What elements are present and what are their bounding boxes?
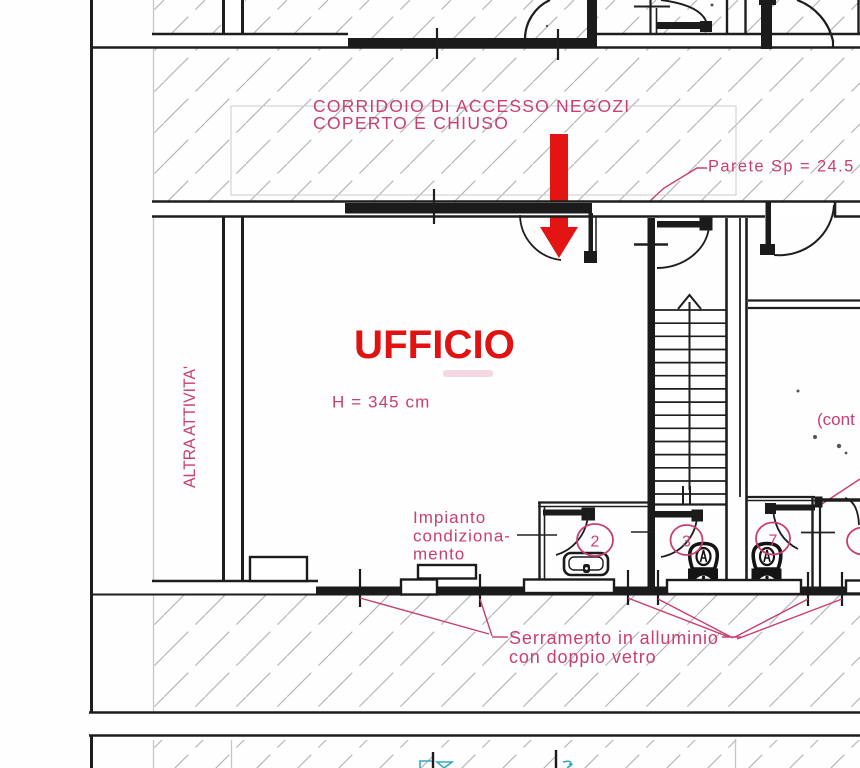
svg-text:Serramento in alluminio: Serramento in alluminio (509, 628, 719, 648)
svg-text:H = 345 cm: H = 345 cm (332, 393, 430, 412)
svg-text:mento: mento (413, 545, 465, 564)
svg-text:UFFICIO: UFFICIO (354, 323, 515, 367)
svg-text:2: 2 (591, 534, 600, 551)
svg-text:3: 3 (682, 534, 691, 551)
svg-text:(cont: (cont (817, 410, 855, 429)
svg-text:7: 7 (769, 533, 778, 550)
svg-text:con doppio vetro: con doppio vetro (509, 647, 657, 667)
svg-text:condiziona-: condiziona- (413, 527, 511, 546)
svg-text:ALTRA ATTIVITA': ALTRA ATTIVITA' (180, 366, 199, 488)
svg-text:COPERTO E CHIUSO: COPERTO E CHIUSO (313, 113, 509, 133)
svg-text:Parete Sp = 24.5: Parete Sp = 24.5 (708, 158, 855, 176)
svg-text:Impianto: Impianto (413, 508, 486, 527)
